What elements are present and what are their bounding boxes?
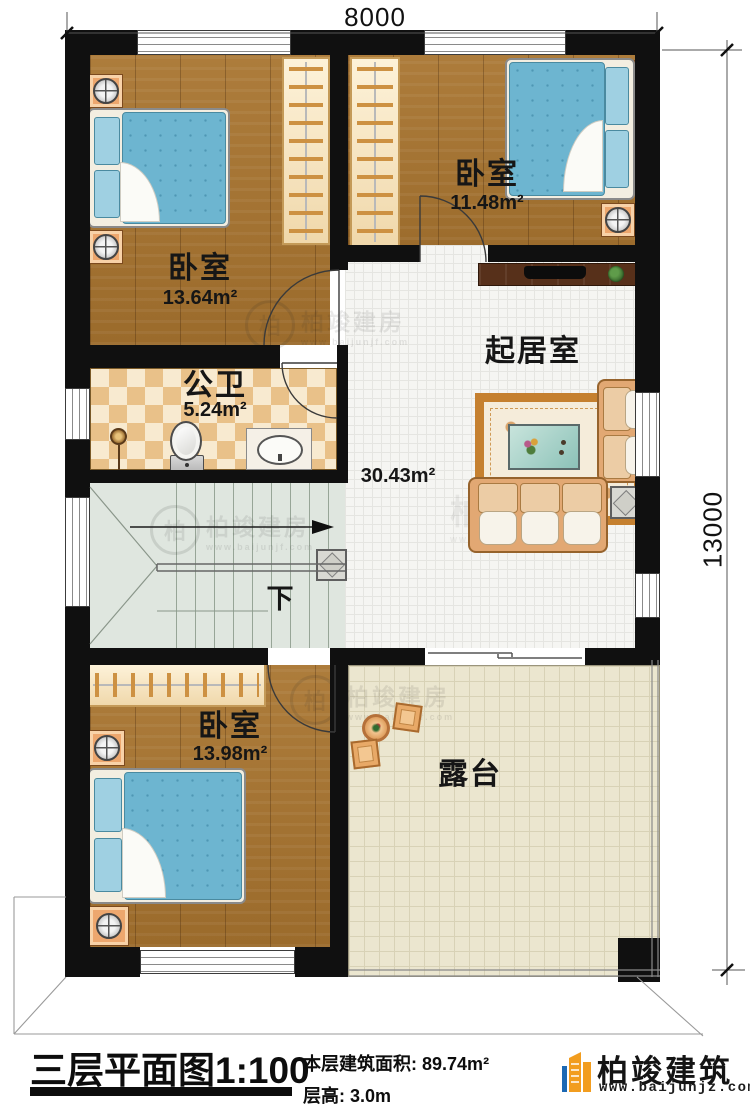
side-table [316, 549, 347, 581]
toilet-bowl-icon [170, 421, 202, 461]
room-area-bedroom-top-left: 13.64m² [163, 288, 238, 308]
terrace-chair [350, 738, 380, 769]
stair-landing [90, 483, 158, 648]
tv-icon [524, 266, 586, 279]
dimension-height: 13000 [698, 490, 729, 570]
wall [348, 245, 420, 262]
window [65, 497, 90, 607]
wall [585, 648, 660, 665]
wall [65, 947, 140, 977]
wall [635, 477, 660, 573]
wall [337, 345, 348, 368]
nightstand [89, 906, 129, 946]
sofa-bottom [468, 477, 608, 553]
stairs-direction-label: 下 [267, 586, 296, 613]
wall [345, 648, 425, 665]
wardrobe [88, 663, 266, 707]
window [137, 30, 291, 55]
nightstand [89, 230, 123, 264]
lamp-icon [96, 913, 122, 939]
title-underline [30, 1087, 292, 1096]
wall [291, 30, 424, 55]
sink-counter [246, 428, 312, 470]
nightstand [601, 203, 635, 237]
window [65, 388, 90, 440]
window [635, 392, 660, 477]
wall [330, 30, 348, 270]
bed [505, 58, 635, 200]
room-label-bedroom-top-left: 卧室 [168, 254, 232, 284]
wardrobe [350, 57, 400, 247]
room-label-bathroom: 公卫 [183, 371, 247, 401]
window [424, 30, 566, 55]
floor-plan: 柏 柏竣建房www.baijunjf.com 柏 柏竣建房www.baijunj… [0, 0, 750, 1109]
lamp-icon [93, 234, 119, 260]
room-area-living-room: 30.43m² [361, 466, 436, 486]
nightstand [89, 74, 123, 108]
wall [65, 470, 345, 483]
wall [337, 368, 348, 483]
wall [635, 30, 660, 392]
window [635, 573, 660, 618]
plan-title: 三层平面图1:100 [30, 1040, 310, 1094]
room-area-bathroom: 5.24m² [183, 400, 246, 420]
room-label-bedroom-top-right: 卧室 [455, 160, 519, 190]
brand-logo-icon [540, 1042, 594, 1100]
wall [65, 440, 90, 497]
floor-height-line: 层高: 3.0m [303, 1082, 391, 1108]
room-area-bedroom-top-right: 11.48m² [450, 193, 523, 213]
room-label-terrace: 露台 [438, 760, 502, 790]
wall [65, 30, 90, 388]
nightstand [89, 730, 125, 766]
dimension-width: 8000 [340, 2, 410, 33]
lamp-icon [605, 207, 631, 233]
bed [88, 768, 246, 904]
sliding-door [428, 653, 582, 658]
wall [65, 345, 280, 368]
lamp-icon [93, 78, 119, 104]
plant-icon [608, 266, 624, 282]
wall [330, 648, 348, 977]
wall [65, 648, 268, 665]
wall [488, 245, 635, 262]
window [140, 950, 295, 974]
wardrobe [282, 57, 330, 245]
terrace-column [618, 938, 660, 982]
brand-website: www.baijunjz.com [599, 1080, 750, 1096]
wall [295, 947, 348, 977]
floor-area-line: 本层建筑面积: 89.74m² [303, 1050, 489, 1076]
terrace-chair [392, 702, 422, 732]
room-label-bedroom-bottom: 卧室 [198, 712, 262, 742]
sink-icon [257, 435, 303, 465]
towel-stand-icon [110, 428, 127, 445]
lamp-icon [94, 735, 120, 761]
coffee-table [508, 424, 580, 470]
room-label-living-room: 起居室 [485, 337, 581, 367]
room-area-bedroom-bottom: 13.98m² [193, 744, 268, 764]
bed [88, 108, 230, 228]
